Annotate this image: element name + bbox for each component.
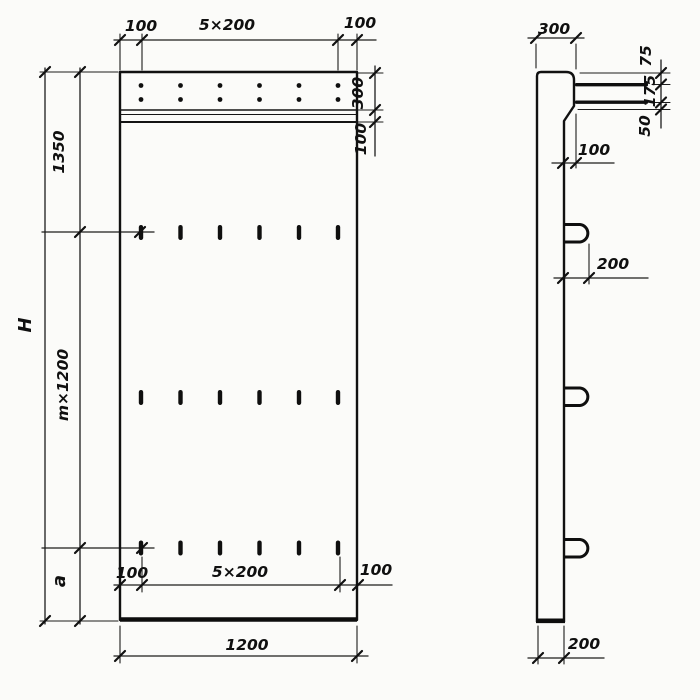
panel-front-outline: [120, 72, 357, 620]
panel-technical-drawing: 100 5×200 100 300 100 1350 H m×1200 a 10…: [0, 0, 700, 700]
dim-label-175: 175: [641, 75, 659, 107]
anchor-dots: [139, 83, 341, 102]
dim-label-1350: 1350: [50, 130, 68, 173]
front-view: 100 5×200 100 300 100 1350 H m×1200 a 10…: [15, 14, 392, 663]
side-view: 300 75 175 50 100 200 200: [528, 20, 670, 664]
dim-label-m-1200: m×1200: [54, 349, 72, 421]
dim-label-50: 50: [636, 115, 654, 137]
dim-label-overall-width: 1200: [225, 636, 268, 654]
side-view-labels: 300 75 175 50 100 200 200: [538, 20, 659, 653]
tick-marks: [40, 35, 380, 661]
drawing-sheet: 100 5×200 100 300 100 1350 H m×1200 a 10…: [0, 0, 700, 700]
dim-label-strip-height: 300: [349, 77, 367, 110]
dim-label-top-right: 100: [344, 14, 377, 32]
dim-label-a: a: [49, 575, 70, 587]
dim-label-ledge-offset: 100: [578, 141, 611, 159]
dim-label-top-center: 5×200: [199, 16, 255, 34]
slot-rows: [139, 225, 340, 556]
dim-label-loop-length: 200: [597, 255, 630, 273]
dim-label-thickness: 200: [568, 635, 601, 653]
dim-label-bottom-left: 100: [116, 564, 149, 582]
dim-label-H: H: [15, 317, 36, 332]
dim-label-75: 75: [637, 45, 655, 67]
dim-label-bottom-center: 5×200: [212, 563, 268, 581]
top-strip-lines: [120, 110, 357, 122]
top-rods: [575, 83, 648, 104]
dim-label-band-height: 100: [352, 123, 370, 156]
dim-label-bottom-right: 100: [360, 561, 393, 579]
dim-label-side-top-width: 300: [538, 20, 571, 38]
dim-label-top-left: 100: [125, 17, 158, 35]
